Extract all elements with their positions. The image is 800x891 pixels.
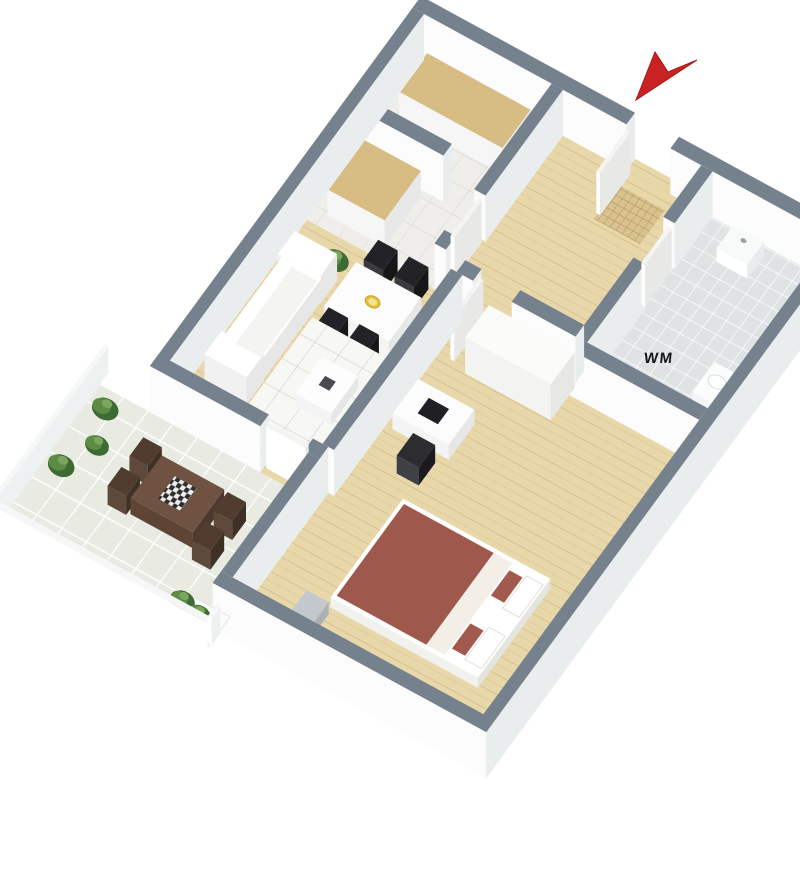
balcony-railing-right-face (208, 617, 212, 645)
washing-machine-label: WM (643, 350, 674, 367)
floor-plan-stage: WM (0, 0, 800, 891)
entrance-door-face (596, 171, 600, 215)
entrance-arrow-icon (636, 52, 697, 100)
bathroom-door-face (641, 263, 645, 307)
floor-plan-canvas (0, 0, 800, 891)
